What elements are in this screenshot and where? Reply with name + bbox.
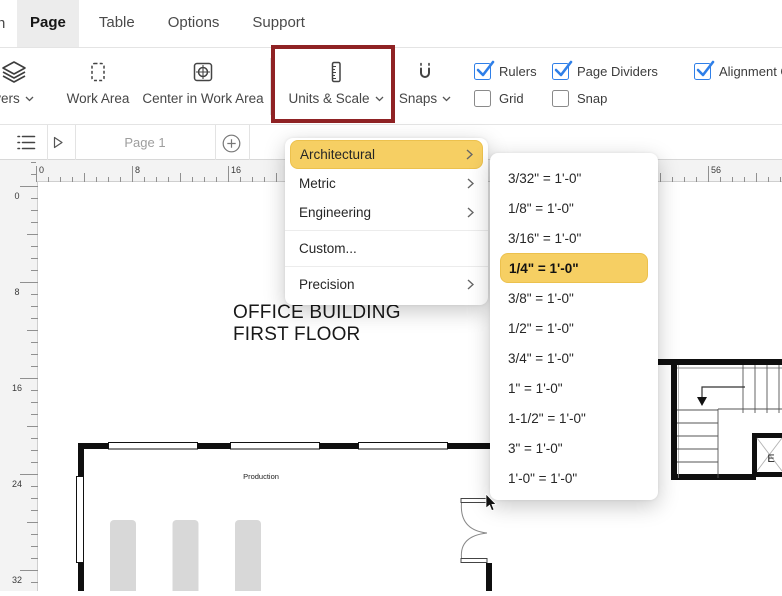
- check-icon: [554, 59, 573, 78]
- scale-option-1-4-1-0[interactable]: 1/4" = 1'-0": [500, 253, 648, 283]
- chevron-down-icon: [442, 96, 451, 102]
- page-dividers-checkbox[interactable]: Page Dividers: [552, 63, 658, 80]
- checkbox-label: Rulers: [499, 64, 537, 79]
- chevron-down-icon: [375, 96, 384, 102]
- menu-option-precision[interactable]: Precision: [285, 270, 488, 299]
- menu-item-support[interactable]: Support: [239, 0, 318, 47]
- check-icon: [476, 59, 495, 78]
- toolbar-divider: [270, 58, 271, 115]
- checkbox-box[interactable]: [474, 90, 491, 107]
- architectural-scale-submenu: 3/32" = 1'-0"1/8" = 1'-0"3/16" = 1'-0"1/…: [490, 153, 658, 500]
- page-bar-divider: [47, 125, 48, 160]
- menu-divider: [285, 230, 488, 231]
- checkbox-label: Snap: [577, 91, 607, 106]
- svg-text:8: 8: [14, 287, 19, 297]
- clipped-menu-item: n: [0, 0, 5, 48]
- work-area-button[interactable]: Work Area: [55, 59, 141, 106]
- center-in-work-area-button[interactable]: Center in Work Area: [139, 59, 267, 106]
- menu-option-engineering[interactable]: Engineering: [285, 198, 488, 227]
- menu-bar: n PageTableOptionsSupport: [0, 0, 782, 48]
- scale-option-1-1-2-1-0[interactable]: 1-1/2" = 1'-0": [490, 403, 658, 433]
- page-tab[interactable]: Page 1: [75, 125, 215, 160]
- checkbox-box[interactable]: [474, 63, 491, 80]
- svg-text:16: 16: [231, 165, 241, 175]
- chevron-right-icon: [467, 279, 474, 290]
- floor-plan-title: OFFICE BUILDING FIRST FLOOR: [233, 302, 401, 345]
- chevron-down-icon: [25, 96, 34, 102]
- menu-item-page[interactable]: Page: [17, 0, 79, 47]
- menu-option-label: Precision: [299, 277, 355, 292]
- svg-text:0: 0: [39, 165, 44, 175]
- scale-option-3-4-1-0[interactable]: 3/4" = 1'-0": [490, 343, 658, 373]
- menu-option-metric[interactable]: Metric: [285, 169, 488, 198]
- title-line-2: FIRST FLOOR: [233, 324, 401, 346]
- layers-button[interactable]: yers: [0, 59, 46, 106]
- units-scale-icon: [323, 59, 349, 85]
- center-in-work-area-icon: [191, 59, 215, 85]
- title-line-1: OFFICE BUILDING: [233, 302, 401, 324]
- page-bar-divider: [215, 125, 216, 160]
- scale-option-1-1-0[interactable]: 1" = 1'-0": [490, 373, 658, 403]
- checkbox-box[interactable]: [694, 63, 711, 80]
- checkbox-label: Alignment Gu: [719, 64, 782, 79]
- rulers-checkbox[interactable]: Rulers: [474, 63, 537, 80]
- grid-checkbox[interactable]: Grid: [474, 90, 524, 107]
- checkbox-box[interactable]: [552, 90, 569, 107]
- work-area-label: Work Area: [67, 91, 130, 106]
- svg-text:16: 16: [12, 383, 22, 393]
- menu-divider: [285, 266, 488, 267]
- page-bar-divider: [249, 125, 250, 160]
- layers-icon: [1, 59, 27, 85]
- menu-option-label: Engineering: [299, 205, 371, 220]
- toolbar: yers Work Area Center in Work Area: [0, 48, 782, 125]
- chevron-right-icon: [467, 178, 474, 189]
- work-area-icon: [85, 59, 111, 85]
- menu-item-options[interactable]: Options: [155, 0, 233, 47]
- layers-label: yers: [0, 91, 20, 106]
- menu-item-table[interactable]: Table: [86, 0, 148, 47]
- menu-items: PageTableOptionsSupport: [17, 0, 325, 47]
- vertical-ruler: 08162432: [0, 160, 38, 591]
- menu-option-label: Architectural: [300, 147, 375, 162]
- scale-option-1-8-1-0[interactable]: 1/8" = 1'-0": [490, 193, 658, 223]
- checkbox-label: Page Dividers: [577, 64, 658, 79]
- units-scale-label: Units & Scale: [288, 91, 369, 106]
- alignment-guides-checkbox[interactable]: Alignment Gu: [694, 63, 782, 80]
- menu-option-custom[interactable]: Custom...: [285, 234, 488, 263]
- menu-option-label: Custom...: [299, 241, 357, 256]
- add-page-icon[interactable]: [222, 134, 241, 158]
- magnet-icon: [413, 59, 437, 85]
- scale-option-1-2-1-0[interactable]: 1/2" = 1'-0": [490, 313, 658, 343]
- scale-option-1-0-1-0[interactable]: 1'-0" = 1'-0": [490, 463, 658, 493]
- scale-option-3-8-1-0[interactable]: 3/8" = 1'-0": [490, 283, 658, 313]
- svg-text:56: 56: [711, 165, 721, 175]
- scale-option-3-32-1-0[interactable]: 3/32" = 1'-0": [490, 163, 658, 193]
- scale-option-3-1-0[interactable]: 3" = 1'-0": [490, 433, 658, 463]
- snaps-button[interactable]: Snaps: [392, 59, 458, 106]
- svg-text:32: 32: [12, 575, 22, 585]
- page-list-icon[interactable]: [17, 134, 36, 156]
- check-icon: [696, 59, 715, 78]
- units-scale-menu: ArchitecturalMetricEngineeringCustom...P…: [285, 138, 488, 305]
- svg-text:0: 0: [14, 191, 19, 201]
- units-scale-button[interactable]: Units & Scale: [284, 59, 388, 106]
- menu-option-label: Metric: [299, 176, 336, 191]
- snap-checkbox[interactable]: Snap: [552, 90, 607, 107]
- scale-option-3-16-1-0[interactable]: 3/16" = 1'-0": [490, 223, 658, 253]
- chevron-right-icon: [466, 149, 473, 160]
- svg-text:8: 8: [135, 165, 140, 175]
- checkbox-label: Grid: [499, 91, 524, 106]
- snaps-label: Snaps: [399, 91, 437, 106]
- play-icon[interactable]: [53, 136, 64, 154]
- chevron-right-icon: [467, 207, 474, 218]
- center-in-work-area-label: Center in Work Area: [142, 91, 263, 106]
- checkbox-box[interactable]: [552, 63, 569, 80]
- svg-text:24: 24: [12, 479, 22, 489]
- menu-option-architectural[interactable]: Architectural: [290, 140, 483, 169]
